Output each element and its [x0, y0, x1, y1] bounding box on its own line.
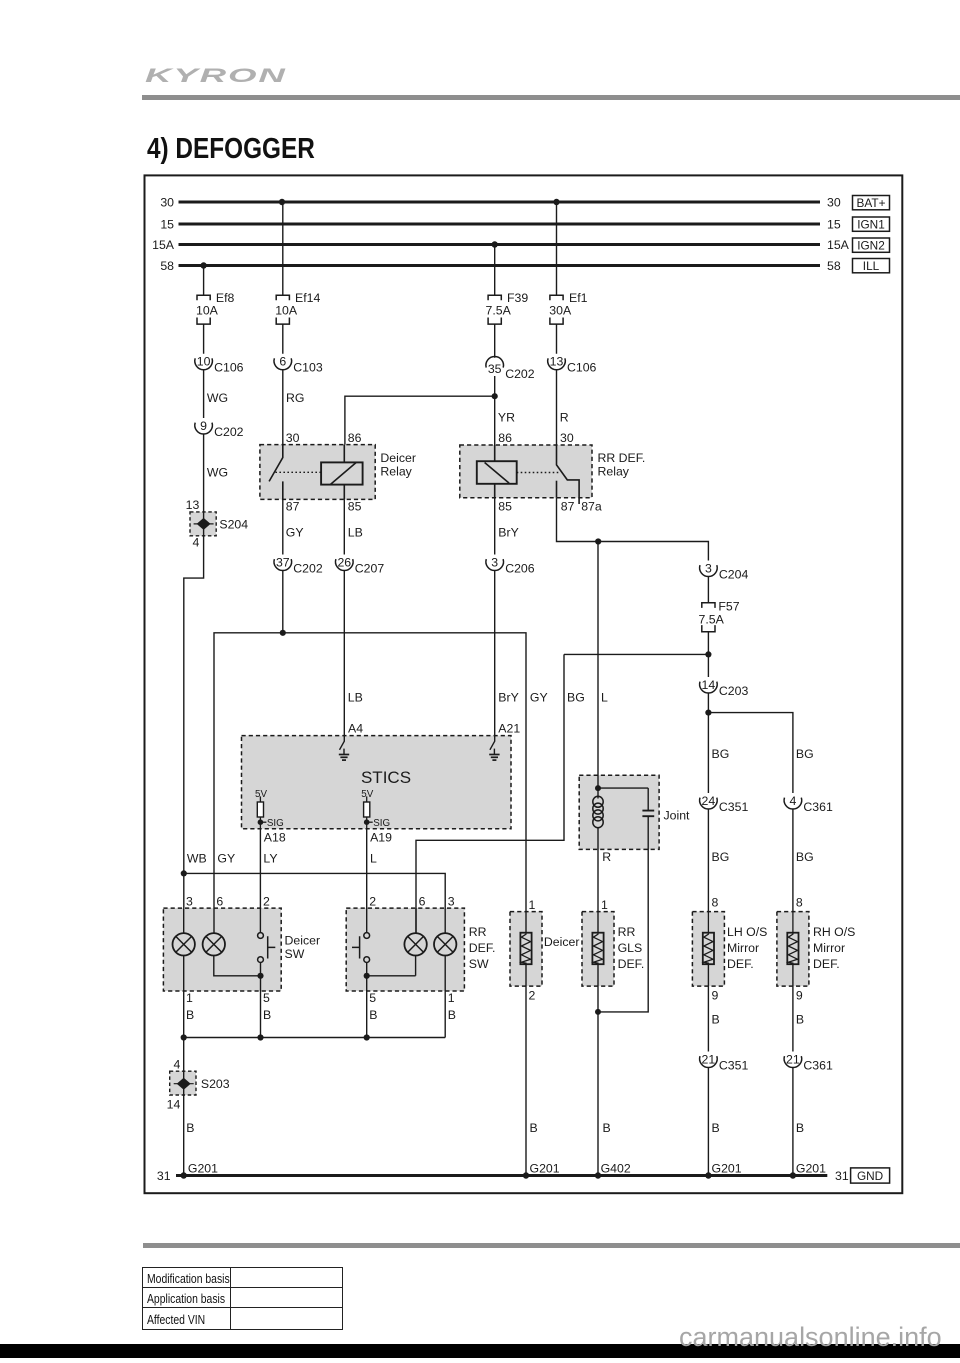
svg-text:SIG: SIG [373, 818, 390, 829]
svg-text:C202: C202 [214, 425, 244, 439]
svg-text:SW: SW [285, 947, 305, 961]
svg-text:C106: C106 [567, 361, 597, 375]
svg-text:WG: WG [207, 391, 228, 405]
svg-text:A19: A19 [370, 831, 392, 845]
svg-text:31: 31 [157, 1169, 171, 1183]
svg-text:IGN1: IGN1 [857, 217, 885, 231]
svg-text:58: 58 [160, 259, 174, 273]
svg-text:Relay: Relay [380, 465, 412, 479]
svg-text:Ef14: Ef14 [295, 291, 320, 305]
svg-text:B: B [186, 1121, 194, 1135]
svg-text:R: R [560, 411, 569, 425]
svg-text:C361: C361 [803, 1058, 833, 1072]
svg-text:B: B [263, 1008, 271, 1022]
svg-text:G402: G402 [601, 1161, 631, 1175]
svg-text:Joint: Joint [664, 809, 691, 823]
svg-text:C203: C203 [719, 684, 749, 698]
svg-text:35: 35 [488, 362, 502, 376]
svg-text:30A: 30A [549, 304, 572, 318]
svg-text:G201: G201 [712, 1161, 742, 1175]
svg-text:Mirror: Mirror [727, 941, 759, 955]
svg-text:2: 2 [529, 989, 536, 1003]
svg-text:8: 8 [796, 895, 803, 909]
svg-text:G201: G201 [188, 1161, 218, 1175]
svg-text:Ef1: Ef1 [569, 291, 588, 305]
svg-text:B: B [603, 1121, 611, 1135]
svg-text:15: 15 [827, 217, 841, 231]
svg-text:3: 3 [448, 895, 455, 909]
svg-text:GND: GND [857, 1169, 883, 1183]
svg-text:1: 1 [448, 991, 455, 1005]
svg-text:S203: S203 [201, 1077, 230, 1091]
svg-text:C361: C361 [803, 800, 833, 814]
svg-text:SW: SW [469, 957, 489, 971]
svg-text:DEF.: DEF. [618, 957, 645, 971]
svg-text:5V: 5V [255, 789, 267, 800]
svg-text:Deicer: Deicer [285, 933, 321, 947]
svg-text:B: B [796, 1013, 804, 1027]
svg-text:LH O/S: LH O/S [727, 925, 767, 939]
svg-text:B: B [448, 1008, 456, 1022]
svg-text:30: 30 [827, 195, 841, 209]
svg-text:LB: LB [348, 691, 363, 705]
svg-text:1: 1 [186, 991, 193, 1005]
svg-text:85: 85 [498, 500, 512, 514]
svg-text:15: 15 [160, 217, 174, 231]
svg-text:C204: C204 [719, 567, 749, 581]
svg-text:5: 5 [369, 991, 376, 1005]
svg-text:BG: BG [796, 747, 814, 761]
svg-text:30: 30 [560, 431, 574, 445]
svg-text:GY: GY [286, 526, 304, 540]
svg-text:C202: C202 [293, 561, 323, 575]
svg-text:6: 6 [419, 895, 426, 909]
svg-text:BG: BG [712, 747, 730, 761]
svg-text:DEF.: DEF. [813, 957, 840, 971]
svg-text:B: B [796, 1121, 804, 1135]
svg-text:GLS: GLS [618, 941, 643, 955]
svg-text:3: 3 [186, 895, 193, 909]
svg-text:37: 37 [276, 556, 290, 570]
svg-text:RH O/S: RH O/S [813, 925, 855, 939]
svg-text:B: B [369, 1008, 377, 1022]
svg-text:10A: 10A [196, 304, 219, 318]
svg-text:BrY: BrY [498, 691, 519, 705]
svg-text:10A: 10A [275, 304, 298, 318]
svg-text:L: L [601, 691, 608, 705]
svg-text:Mirror: Mirror [813, 941, 845, 955]
svg-text:A18: A18 [264, 831, 286, 845]
svg-text:B: B [712, 1121, 720, 1135]
svg-text:8: 8 [712, 895, 719, 909]
svg-text:BG: BG [712, 850, 730, 864]
svg-text:R: R [602, 850, 611, 864]
svg-text:4: 4 [192, 535, 199, 549]
svg-text:BrY: BrY [498, 526, 519, 540]
svg-text:BG: BG [567, 691, 585, 705]
svg-text:C206: C206 [505, 561, 535, 575]
svg-text:C351: C351 [719, 1058, 749, 1072]
svg-text:STICS: STICS [361, 768, 411, 787]
svg-text:26: 26 [337, 556, 351, 570]
svg-text:24: 24 [702, 794, 716, 808]
svg-text:3: 3 [491, 556, 498, 570]
svg-text:15A: 15A [152, 238, 175, 252]
svg-text:15A: 15A [827, 238, 850, 252]
svg-text:87: 87 [561, 500, 575, 514]
svg-text:5V: 5V [361, 789, 373, 800]
svg-text:30: 30 [286, 431, 300, 445]
svg-text:13: 13 [550, 355, 564, 369]
svg-text:C351: C351 [719, 800, 749, 814]
svg-text:IGN2: IGN2 [857, 238, 885, 252]
svg-text:LY: LY [263, 851, 277, 865]
svg-text:RR: RR [469, 925, 487, 939]
svg-text:WG: WG [207, 465, 228, 479]
svg-text:Relay: Relay [598, 465, 630, 479]
svg-text:C207: C207 [355, 561, 385, 575]
svg-text:ILL: ILL [863, 259, 880, 273]
svg-text:14: 14 [702, 678, 716, 692]
svg-text:9: 9 [200, 419, 207, 433]
svg-text:85: 85 [348, 500, 362, 514]
svg-text:Deicer: Deicer [380, 451, 416, 465]
svg-text:S204: S204 [219, 517, 248, 531]
svg-text:YR: YR [498, 411, 515, 425]
svg-text:7.5A: 7.5A [699, 612, 725, 626]
svg-text:2: 2 [369, 895, 376, 909]
svg-text:10: 10 [197, 355, 211, 369]
svg-text:58: 58 [827, 259, 841, 273]
svg-text:B: B [530, 1121, 538, 1135]
svg-text:3: 3 [705, 562, 712, 576]
svg-text:13: 13 [186, 498, 200, 512]
svg-text:BG: BG [796, 850, 814, 864]
svg-text:F57: F57 [718, 599, 739, 613]
svg-text:BAT+: BAT+ [857, 196, 886, 210]
svg-text:Deicer: Deicer [544, 935, 580, 949]
svg-text:B: B [712, 1013, 720, 1027]
svg-text:RR: RR [618, 925, 636, 939]
svg-text:C202: C202 [505, 367, 535, 381]
svg-text:G201: G201 [530, 1161, 560, 1175]
svg-text:9: 9 [712, 989, 719, 1003]
svg-text:31: 31 [835, 1169, 849, 1183]
svg-text:WB: WB [187, 851, 207, 865]
svg-text:1: 1 [601, 898, 608, 912]
svg-text:6: 6 [279, 355, 286, 369]
svg-text:86: 86 [498, 431, 512, 445]
svg-text:1: 1 [529, 898, 536, 912]
svg-text:9: 9 [796, 989, 803, 1003]
svg-text:7.5A: 7.5A [486, 304, 512, 318]
svg-text:GY: GY [217, 851, 235, 865]
svg-text:4: 4 [173, 1058, 180, 1072]
svg-text:5: 5 [263, 991, 270, 1005]
svg-text:A4: A4 [348, 722, 363, 736]
svg-text:4: 4 [789, 794, 796, 808]
svg-text:87a: 87a [581, 500, 602, 514]
svg-text:21: 21 [786, 1053, 800, 1067]
svg-text:A21: A21 [498, 722, 520, 736]
svg-text:B: B [186, 1008, 194, 1022]
svg-text:L: L [370, 851, 377, 865]
svg-text:C106: C106 [214, 361, 244, 375]
svg-text:GY: GY [530, 691, 548, 705]
svg-text:C103: C103 [293, 361, 323, 375]
svg-text:6: 6 [216, 895, 223, 909]
svg-text:DEF.: DEF. [469, 941, 496, 955]
svg-text:Ef8: Ef8 [216, 291, 235, 305]
svg-text:2: 2 [263, 895, 270, 909]
svg-text:30: 30 [160, 195, 174, 209]
svg-text:G201: G201 [796, 1161, 826, 1175]
svg-text:86: 86 [348, 431, 362, 445]
svg-text:DEF.: DEF. [727, 957, 754, 971]
svg-text:LB: LB [348, 526, 363, 540]
svg-text:14: 14 [167, 1097, 181, 1111]
svg-text:21: 21 [702, 1053, 716, 1067]
svg-text:RG: RG [286, 391, 304, 405]
svg-text:RR DEF.: RR DEF. [598, 451, 646, 465]
svg-text:87: 87 [286, 500, 300, 514]
svg-text:SIG: SIG [267, 818, 284, 829]
